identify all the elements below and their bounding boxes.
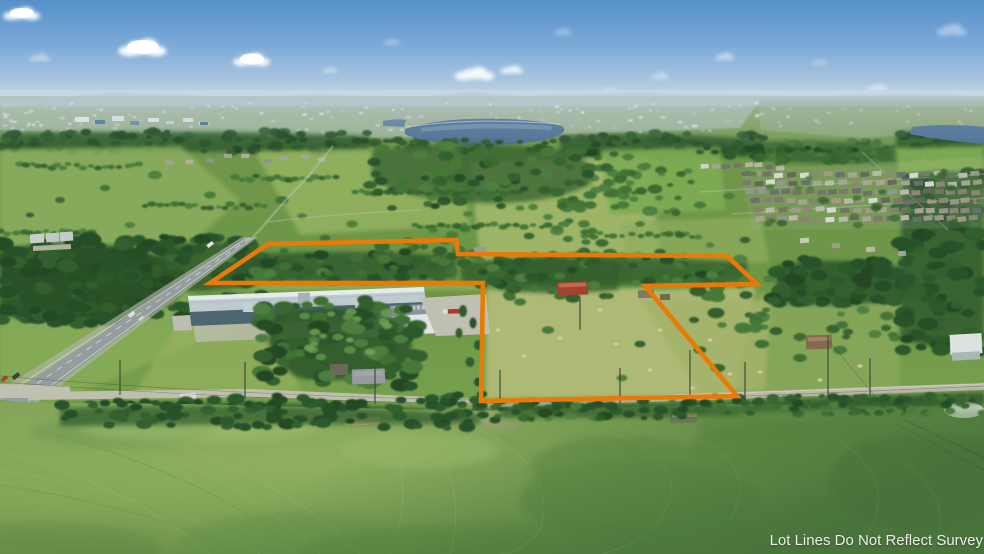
svg-text:Lot Lines Do Not Reflect Surve: Lot Lines Do Not Reflect Survey bbox=[770, 532, 984, 549]
